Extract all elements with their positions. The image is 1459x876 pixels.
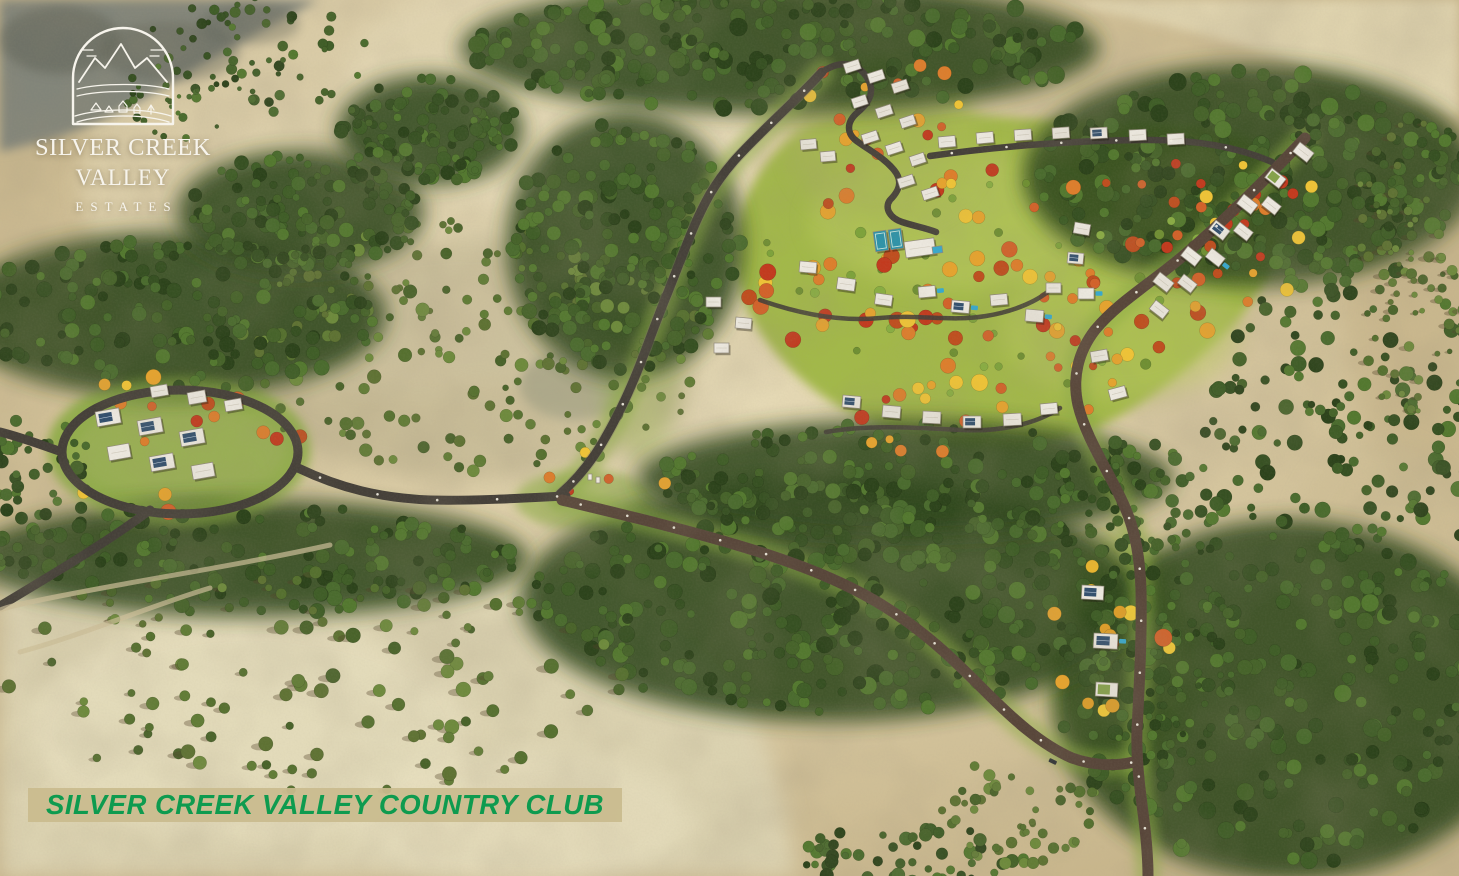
logo-line-1: SILVER CREEK	[18, 134, 228, 162]
banner-label: SILVER CREEK VALLEY COUNTRY CLUB	[46, 789, 604, 820]
country-club-banner: SILVER CREEK VALLEY COUNTRY CLUB	[28, 788, 622, 822]
mountain-valley-emblem	[70, 26, 176, 126]
logo: SILVER CREEK VALLEY ESTATES	[18, 26, 228, 215]
aerial-masterplan-render: SILVER CREEK VALLEY ESTATES SILVER CREEK…	[0, 0, 1459, 876]
logo-line-3: ESTATES	[18, 199, 228, 215]
logo-line-2: VALLEY	[18, 165, 228, 191]
